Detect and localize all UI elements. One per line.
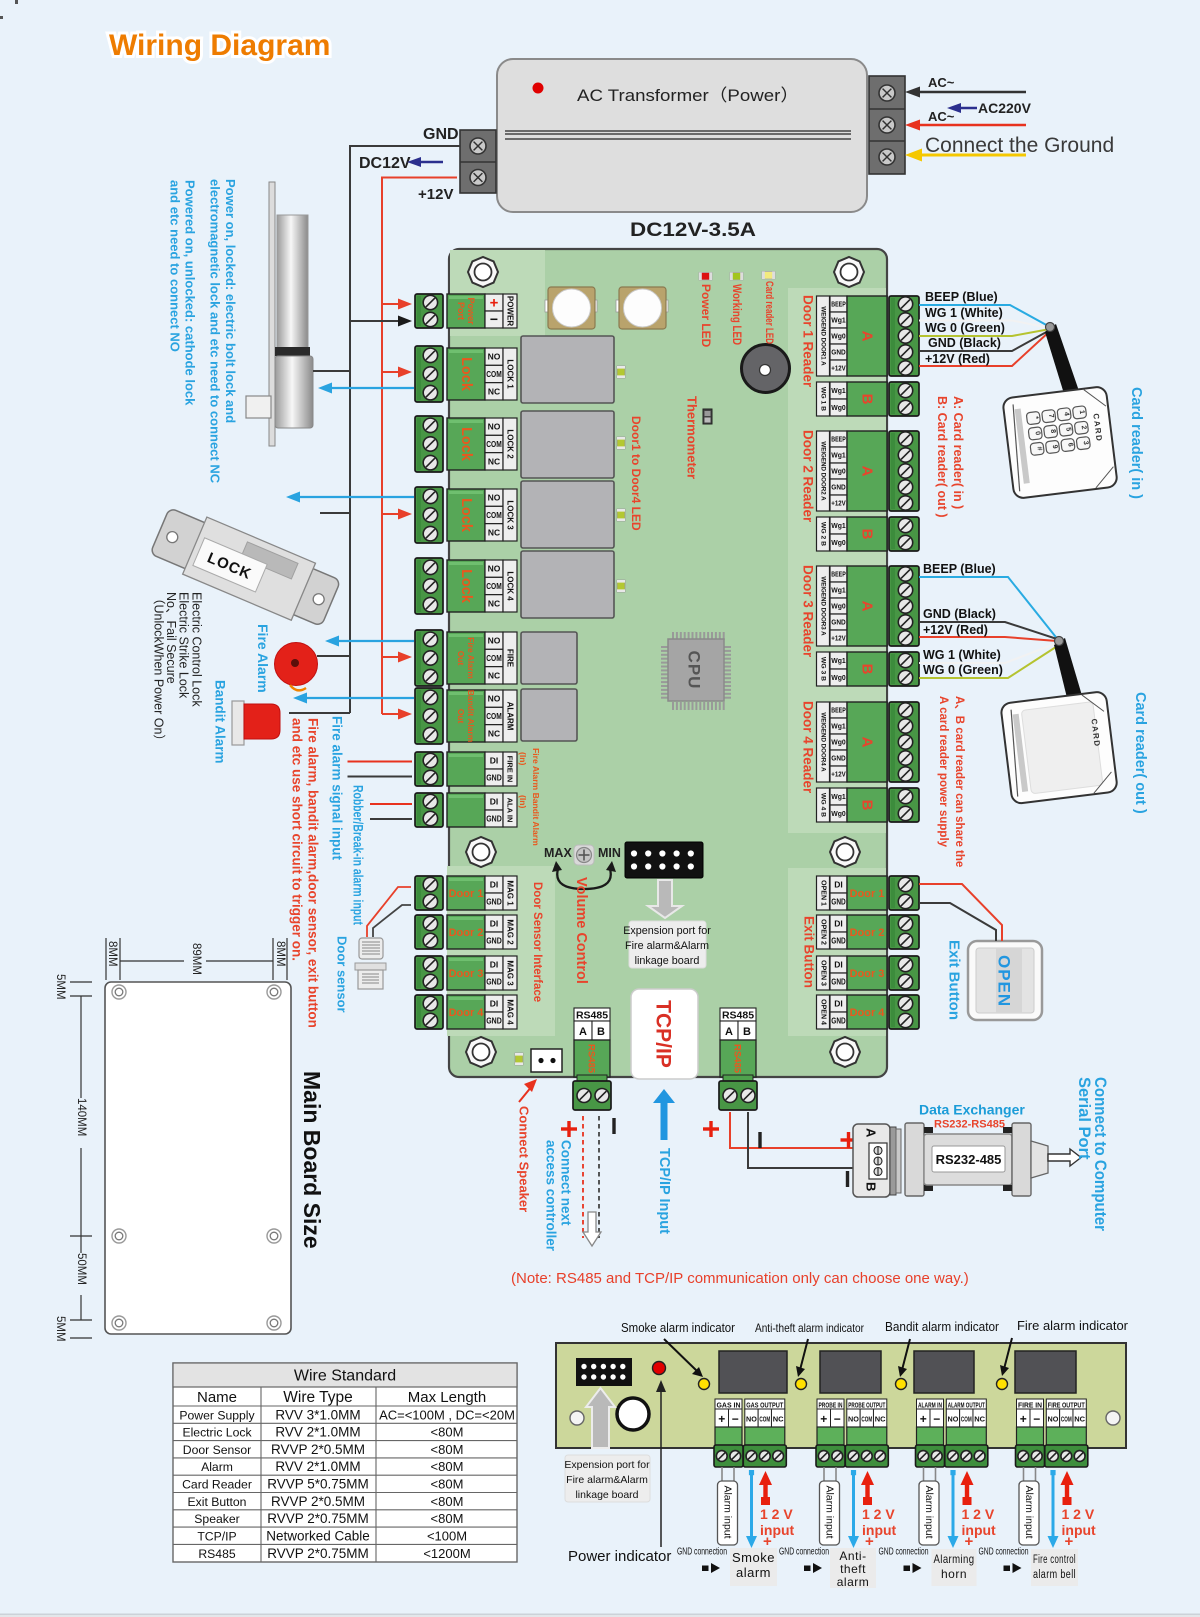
svg-text:NC: NC — [1074, 1417, 1085, 1424]
svg-text:A: A — [725, 1026, 733, 1038]
svg-text:electromagnetic lock and etc n: electromagnetic lock and etc need to con… — [208, 179, 223, 484]
svg-text:Card reader LED: Card reader LED — [763, 281, 775, 344]
svg-text:NO: NO — [488, 493, 501, 503]
svg-text:Door 1: Door 1 — [449, 888, 484, 900]
svg-text:theft: theft — [840, 1562, 866, 1576]
svg-text:AC Transformer（Power）: AC Transformer（Power） — [577, 86, 799, 105]
svg-text:Wg0: Wg0 — [831, 602, 846, 611]
svg-text:RS485: RS485 — [586, 1044, 597, 1074]
svg-text:A card reader power supply: A card reader power supply — [937, 696, 949, 848]
svg-text:Bandit alarm indicator: Bandit alarm indicator — [885, 1320, 999, 1334]
svg-text:1 2 V: 1 2 V — [862, 1506, 895, 1522]
svg-text:Alarm input: Alarm input — [722, 1485, 734, 1538]
svg-text:WG 0 (Green): WG 0 (Green) — [925, 321, 1005, 335]
svg-text:Alarm input: Alarm input — [1023, 1485, 1035, 1538]
svg-text:GND connection: GND connection — [879, 1546, 929, 1558]
svg-text:+12V: +12V — [831, 364, 846, 373]
svg-text:NC: NC — [488, 598, 500, 608]
svg-text:WEIGEND DOOR2 A: WEIGEND DOOR2 A — [820, 441, 827, 501]
svg-text:TCP/IP: TCP/IP — [652, 1000, 675, 1068]
svg-text:DI: DI — [834, 919, 843, 929]
svg-text:Card Reader: Card Reader — [182, 1478, 252, 1492]
svg-text:COM: COM — [486, 369, 502, 379]
svg-text:+: + — [1065, 1533, 1074, 1550]
svg-text:Robber/Break-in alarm input: Robber/Break-in alarm input — [351, 785, 366, 925]
svg-text:Out: Out — [456, 651, 466, 666]
svg-text:GND: GND — [423, 126, 459, 143]
svg-text:ALARM IN: ALARM IN — [918, 1400, 942, 1409]
svg-text:+12V (Red): +12V (Red) — [923, 623, 988, 637]
svg-text:GND connection: GND connection — [677, 1546, 727, 1558]
svg-text:1 2 V: 1 2 V — [1062, 1506, 1095, 1522]
svg-text:NC: NC — [488, 386, 500, 396]
svg-text:Power on, locked: electric bol: Power on, locked: electric bolt lock and — [223, 179, 238, 423]
svg-text:Power LED: Power LED — [699, 284, 713, 348]
svg-text:horn: horn — [941, 1567, 967, 1581]
svg-text:A: A — [859, 737, 876, 748]
svg-text:WEIGEND DOOR3 A: WEIGEND DOOR3 A — [820, 576, 827, 636]
svg-text:POWER: POWER — [506, 296, 515, 326]
svg-text:Bandit Alarm: Bandit Alarm — [466, 690, 476, 743]
svg-text:FIRE OUTPUT: FIRE OUTPUT — [1048, 1400, 1085, 1409]
svg-text:Lock: Lock — [458, 357, 474, 392]
svg-text:Anti-: Anti- — [839, 1549, 866, 1563]
svg-text:Wg1: Wg1 — [831, 521, 846, 530]
svg-text:B: B — [864, 1182, 879, 1191]
svg-text:Powered on, unlocked: cathode: Powered on, unlocked: cathode lock — [183, 180, 198, 406]
svg-text:RVV 3*1.0MM: RVV 3*1.0MM — [275, 1407, 360, 1422]
svg-text:1 2 V: 1 2 V — [962, 1506, 995, 1522]
svg-text:Fire alarm&Alarm: Fire alarm&Alarm — [625, 940, 709, 952]
svg-text:Networked Cable: Networked Cable — [266, 1528, 370, 1543]
svg-text:−: − — [933, 1412, 940, 1426]
svg-text:Fire Alarm: Fire Alarm — [466, 637, 476, 679]
svg-text:COM: COM — [486, 711, 502, 721]
svg-text:Fire alarm&Alarm: Fire alarm&Alarm — [566, 1474, 648, 1486]
svg-text:linkage board: linkage board — [575, 1489, 638, 1501]
svg-text:Wiring Diagram: Wiring Diagram — [109, 29, 330, 62]
svg-text:WG 1 (White): WG 1 (White) — [923, 648, 1001, 662]
svg-text:Door1 to Door4 LED: Door1 to Door4 LED — [629, 416, 643, 531]
svg-text:1 2 V: 1 2 V — [760, 1506, 793, 1522]
svg-text:alarm: alarm — [736, 1565, 771, 1580]
svg-text:BEEP: BEEP — [831, 570, 846, 579]
svg-text:GND: GND — [831, 897, 846, 907]
svg-text:RVV 2*1.0MM: RVV 2*1.0MM — [275, 1425, 360, 1440]
svg-text:Serial Port: Serial Port — [1075, 1077, 1093, 1160]
svg-text:Electric Lock: Electric Lock — [182, 1426, 252, 1440]
svg-text:Fire Alarm Bandit Alarm: Fire Alarm Bandit Alarm — [531, 748, 541, 846]
svg-text:Wg1: Wg1 — [831, 656, 846, 665]
svg-text:+: + — [718, 1412, 725, 1426]
svg-text:DI: DI — [490, 797, 499, 807]
svg-text:MAG 3: MAG 3 — [506, 960, 515, 986]
svg-text:Wg0: Wg0 — [831, 538, 846, 547]
svg-text:DI: DI — [834, 880, 843, 890]
svg-text:<80M: <80M — [431, 1425, 464, 1440]
svg-text:Door Sensor Interface: Door Sensor Interface — [531, 882, 543, 1002]
svg-text:Smoke: Smoke — [732, 1550, 775, 1565]
svg-text:AC~: AC~ — [928, 75, 955, 90]
svg-text:Door Sensor: Door Sensor — [183, 1443, 251, 1457]
svg-text:Wg1: Wg1 — [831, 792, 846, 801]
svg-text:GND: GND — [831, 618, 846, 627]
svg-text:WG 0 (Green): WG 0 (Green) — [923, 663, 1003, 677]
svg-text:−: − — [1033, 1412, 1040, 1426]
svg-text:GND: GND — [486, 977, 502, 987]
svg-text:Alarming: Alarming — [934, 1552, 975, 1566]
svg-text:Door 1 Reader: Door 1 Reader — [801, 295, 816, 388]
svg-text:Expension port for: Expension port for — [623, 925, 711, 937]
svg-text:LOCK 3: LOCK 3 — [506, 500, 515, 530]
svg-text:Alarm input: Alarm input — [923, 1485, 935, 1538]
svg-text:NO: NO — [488, 422, 501, 432]
svg-text:Exit Button: Exit Button — [946, 940, 963, 1020]
svg-text:alarm: alarm — [837, 1575, 870, 1589]
svg-text:Door 1: Door 1 — [850, 888, 885, 900]
svg-text:−: − — [834, 1412, 841, 1426]
svg-text:89MM: 89MM — [190, 943, 202, 975]
svg-text:and etc use short circuit to t: and etc use short circuit to trigger on. — [290, 718, 305, 961]
svg-text:+12V (Red): +12V (Red) — [925, 352, 990, 366]
svg-text:B: B — [743, 1026, 751, 1038]
svg-text:5MM: 5MM — [54, 1316, 66, 1342]
svg-text:B: B — [859, 394, 876, 405]
svg-text:Door 4: Door 4 — [449, 1007, 485, 1019]
svg-text:GND: GND — [486, 936, 502, 946]
svg-text:Fire alarm signal input: Fire alarm signal input — [330, 716, 345, 861]
svg-text:NC: NC — [974, 1417, 985, 1424]
svg-text:<80M: <80M — [431, 1511, 464, 1526]
svg-text:+12V: +12V — [418, 186, 453, 203]
svg-text:+: + — [490, 295, 499, 312]
svg-text:Door 3: Door 3 — [850, 968, 885, 980]
svg-text:+: + — [1020, 1412, 1027, 1426]
svg-text:RVVP 5*0.75MM: RVVP 5*0.75MM — [267, 1477, 369, 1492]
svg-text:DI: DI — [490, 919, 499, 929]
svg-text:140MM: 140MM — [75, 1098, 87, 1136]
svg-text:Door sensor: Door sensor — [335, 936, 350, 1013]
svg-text:+: + — [763, 1533, 772, 1550]
svg-text:Power: Power — [466, 297, 476, 325]
svg-text:Wg1: Wg1 — [831, 722, 846, 731]
svg-text:Wg0: Wg0 — [831, 332, 846, 341]
svg-text:WG 3 B: WG 3 B — [820, 657, 827, 681]
svg-text:Door 2: Door 2 — [449, 927, 484, 939]
svg-text:GND: GND — [831, 483, 846, 492]
svg-text:NO: NO — [488, 694, 501, 704]
svg-text:A: A — [859, 331, 876, 342]
svg-text:A: A — [864, 1128, 879, 1138]
svg-text:A: A — [579, 1026, 587, 1038]
svg-text:A: A — [859, 601, 876, 612]
svg-text:COM: COM — [1061, 1417, 1072, 1424]
svg-text:MAX: MAX — [544, 846, 572, 860]
svg-text:LOCK 4: LOCK 4 — [506, 571, 515, 601]
svg-text:B: Card reader( out ): B: Card reader( out ) — [935, 396, 949, 518]
svg-text:<1200M: <1200M — [423, 1546, 470, 1561]
svg-text:（UnlockWhen Power On）: （UnlockWhen Power On） — [151, 592, 165, 747]
svg-text:RS485: RS485 — [732, 1044, 743, 1074]
svg-text:LOCK 2: LOCK 2 — [506, 429, 515, 459]
svg-text:+12V: +12V — [831, 499, 846, 508]
svg-text:Fire Alarm: Fire Alarm — [255, 624, 271, 693]
svg-text:5MM: 5MM — [54, 974, 66, 1000]
svg-text:RVVP 2*0.5MM: RVVP 2*0.5MM — [271, 1494, 365, 1509]
svg-text:GAS IN: GAS IN — [717, 1400, 741, 1409]
svg-text:FIRE: FIRE — [506, 649, 515, 668]
svg-text:WEIGEND DOOR1 A: WEIGEND DOOR1 A — [820, 306, 827, 366]
svg-text:Smoke alarm indicator: Smoke alarm indicator — [621, 1321, 735, 1335]
svg-text:NC: NC — [488, 670, 500, 680]
svg-text:MAG 1: MAG 1 — [506, 880, 515, 906]
svg-text:COM: COM — [486, 439, 502, 449]
svg-text:Door 3: Door 3 — [449, 968, 484, 980]
svg-text:B: B — [859, 800, 876, 811]
svg-text:GND: GND — [486, 897, 502, 907]
svg-text:GND (Black): GND (Black) — [923, 607, 996, 621]
svg-text:DI: DI — [490, 960, 499, 970]
svg-text:Exit Button: Exit Button — [188, 1495, 247, 1509]
svg-text:MIN: MIN — [598, 846, 621, 860]
svg-text:RS232-485: RS232-485 — [936, 1152, 1002, 1167]
svg-text:Wg0: Wg0 — [831, 673, 846, 682]
svg-text:TCP/IP Input: TCP/IP Input — [656, 1148, 672, 1234]
svg-text:Wg1: Wg1 — [831, 586, 846, 595]
svg-text:DI: DI — [490, 999, 499, 1009]
svg-text:NO: NO — [488, 636, 501, 646]
svg-text:WG 1 B: WG 1 B — [820, 387, 827, 411]
svg-text:<80M: <80M — [431, 1459, 464, 1474]
svg-text:Card reader( in ): Card reader( in ) — [1128, 387, 1144, 499]
svg-text:NC: NC — [488, 456, 500, 466]
svg-text:AC~: AC~ — [928, 109, 955, 124]
svg-text:NO: NO — [1048, 1417, 1059, 1424]
svg-text:Volume Control: Volume Control — [573, 877, 589, 984]
svg-text:COM: COM — [486, 510, 502, 520]
svg-text:DI: DI — [834, 999, 843, 1009]
svg-text:Connect next: Connect next — [559, 1140, 574, 1226]
svg-text:Speaker: Speaker — [194, 1512, 239, 1526]
svg-text:GND connection: GND connection — [979, 1546, 1029, 1558]
svg-text:access controller: access controller — [544, 1140, 559, 1252]
svg-text:OPEN: OPEN — [995, 955, 1014, 1007]
svg-text:ALARM: ALARM — [506, 702, 515, 731]
svg-text:+12V: +12V — [831, 770, 846, 779]
svg-text:Thermometer: Thermometer — [685, 396, 700, 479]
svg-text:RS232-RS485: RS232-RS485 — [934, 1119, 1005, 1131]
svg-text:+12V: +12V — [831, 634, 846, 643]
svg-text:GND connection: GND connection — [779, 1546, 829, 1558]
svg-text:Door 3 Reader: Door 3 Reader — [801, 565, 816, 658]
svg-text:Alarm input: Alarm input — [824, 1485, 836, 1538]
svg-text:Port: Port — [456, 302, 466, 320]
svg-text:Connect Speaker: Connect Speaker — [517, 1106, 532, 1212]
svg-text:Lock: Lock — [458, 427, 474, 462]
svg-text:8MM: 8MM — [274, 941, 286, 967]
svg-text:<80M: <80M — [431, 1494, 464, 1509]
svg-text:Wg1: Wg1 — [831, 316, 846, 325]
svg-text:−: − — [490, 311, 498, 327]
svg-text:A: Card reader( in ): A: Card reader( in ) — [951, 396, 965, 509]
svg-text:COM: COM — [486, 581, 502, 591]
svg-text:Door 4 Reader: Door 4 Reader — [801, 701, 816, 794]
svg-text:Power indicator: Power indicator — [568, 1548, 671, 1565]
svg-text:GND: GND — [831, 936, 846, 946]
svg-text:BEEP: BEEP — [831, 300, 846, 309]
svg-text:NC: NC — [773, 1417, 784, 1424]
svg-text:NO: NO — [488, 564, 501, 574]
svg-text:Exit Button: Exit Button — [802, 916, 817, 988]
svg-text:DI: DI — [490, 756, 499, 766]
svg-text:MAG 4: MAG 4 — [506, 999, 515, 1025]
svg-text:<80M: <80M — [431, 1477, 464, 1492]
svg-text:alarm bell: alarm bell — [1033, 1569, 1076, 1581]
svg-text:Lock: Lock — [458, 569, 474, 604]
svg-text:AC220V: AC220V — [978, 100, 1032, 116]
svg-text:FIRE IN: FIRE IN — [506, 756, 515, 783]
svg-text:Wg0: Wg0 — [831, 403, 846, 412]
svg-text:DI: DI — [490, 880, 499, 890]
svg-text:TCP/IP: TCP/IP — [197, 1529, 236, 1543]
svg-text:Card reader( out ): Card reader( out ) — [1132, 692, 1148, 814]
svg-text:GND: GND — [486, 814, 502, 824]
svg-text:COM: COM — [961, 1417, 972, 1424]
svg-text:Expension port for: Expension port for — [564, 1459, 650, 1471]
svg-text:Main Board Size: Main Board Size — [299, 1071, 325, 1249]
svg-text:OPEN 4: OPEN 4 — [820, 999, 827, 1025]
svg-text:Door 2: Door 2 — [850, 927, 885, 939]
svg-text:COM: COM — [486, 653, 502, 663]
svg-text:BEEP: BEEP — [831, 435, 846, 444]
svg-text:A: A — [859, 466, 876, 477]
svg-text:GAS OUTPUT: GAS OUTPUT — [746, 1400, 783, 1409]
svg-text:NO: NO — [746, 1417, 757, 1424]
svg-text:(In): (In) — [518, 795, 528, 808]
svg-text:Data Exchanger: Data Exchanger — [919, 1102, 1025, 1118]
svg-text:Door 4: Door 4 — [850, 1007, 886, 1019]
svg-text:Fire control: Fire control — [1033, 1554, 1076, 1566]
svg-text:Out: Out — [456, 709, 466, 724]
svg-text:NC: NC — [875, 1417, 886, 1424]
svg-text:GND: GND — [831, 348, 846, 357]
svg-text:+: + — [820, 1412, 827, 1426]
svg-text:DI: DI — [834, 960, 843, 970]
svg-text:WG 4 B: WG 4 B — [820, 793, 827, 817]
svg-text:NC: NC — [488, 527, 500, 537]
svg-text:Anti-theft alarm indicator: Anti-theft alarm indicator — [755, 1321, 864, 1335]
svg-text:Name: Name — [197, 1389, 237, 1406]
svg-text:NO: NO — [488, 352, 501, 362]
svg-text:B: B — [859, 529, 876, 540]
svg-text:OPEN 3: OPEN 3 — [820, 960, 827, 986]
svg-text:GND: GND — [831, 1016, 846, 1026]
svg-text:8MM: 8MM — [106, 941, 118, 967]
svg-text:Alarm: Alarm — [201, 1460, 233, 1474]
svg-text:(Note: RS485 and TCP/IP commun: (Note: RS485 and TCP/IP communication on… — [511, 1270, 969, 1287]
svg-text:NO: NO — [848, 1417, 859, 1424]
svg-text:PROBE IN: PROBE IN — [819, 1400, 843, 1409]
svg-text:ALARM OUTPUT: ALARM OUTPUT — [948, 1400, 985, 1409]
svg-text:A、B card reader can share the: A、B card reader can share the — [953, 696, 965, 867]
svg-text:(In): (In) — [518, 752, 528, 765]
svg-text:+: + — [865, 1533, 874, 1550]
svg-text:RS485: RS485 — [198, 1547, 235, 1561]
svg-text:+: + — [965, 1533, 974, 1550]
svg-text:RVVP 2*0.5MM: RVVP 2*0.5MM — [271, 1442, 365, 1457]
svg-text:FIRE IN: FIRE IN — [1018, 1400, 1042, 1409]
svg-text:PROBE OUTPUT: PROBE OUTPUT — [848, 1400, 885, 1409]
svg-text:Connect the Ground: Connect the Ground — [925, 134, 1114, 157]
svg-text:Wg0: Wg0 — [831, 467, 846, 476]
svg-text:CPU: CPU — [685, 651, 704, 690]
svg-text:WG 1 (White): WG 1 (White) — [925, 306, 1003, 320]
svg-text:B: B — [597, 1026, 605, 1038]
svg-text:RS485: RS485 — [576, 1010, 608, 1022]
svg-text:Max Length: Max Length — [408, 1389, 486, 1406]
svg-text:50MM: 50MM — [75, 1253, 87, 1285]
svg-text:MAG 2: MAG 2 — [506, 919, 515, 945]
svg-text:GND: GND — [486, 773, 502, 783]
svg-text:GND (Black): GND (Black) — [928, 336, 1001, 350]
svg-text:GND: GND — [831, 754, 846, 763]
svg-text:OPEN 1: OPEN 1 — [820, 880, 827, 906]
svg-text:Bandit Alarm: Bandit Alarm — [213, 680, 228, 764]
svg-text:OPEN 2: OPEN 2 — [820, 919, 827, 945]
svg-text:DC12V: DC12V — [359, 155, 411, 172]
svg-text:WG 2 B: WG 2 B — [820, 522, 827, 546]
svg-text:<100M: <100M — [427, 1528, 467, 1543]
svg-text:Working LED: Working LED — [730, 284, 744, 345]
svg-text:RVV 2*1.0MM: RVV 2*1.0MM — [275, 1459, 360, 1474]
svg-text:Door 2 Reader: Door 2 Reader — [801, 430, 816, 523]
svg-text:GND: GND — [831, 977, 846, 987]
svg-text:−: − — [732, 1412, 739, 1426]
svg-text:Wire Standard: Wire Standard — [294, 1368, 396, 1385]
svg-text:Lock: Lock — [458, 498, 474, 533]
svg-text:Wire Type: Wire Type — [283, 1389, 353, 1406]
svg-text:Wg0: Wg0 — [831, 809, 846, 818]
svg-text:Wg0: Wg0 — [831, 738, 846, 747]
svg-text:and etc need to connect NO: and etc need to connect NO — [168, 180, 183, 352]
svg-text:Fire alarm indicator: Fire alarm indicator — [1017, 1319, 1128, 1333]
svg-text:LOCK 1: LOCK 1 — [506, 359, 515, 389]
svg-text:ALA IN: ALA IN — [506, 798, 515, 823]
svg-text:Wg1: Wg1 — [831, 386, 846, 395]
svg-text:NC: NC — [488, 728, 500, 738]
svg-text:linkage board: linkage board — [635, 955, 700, 967]
svg-text:RVVP 2*0.75MM: RVVP 2*0.75MM — [267, 1546, 369, 1561]
svg-text:BEEP (Blue): BEEP (Blue) — [923, 562, 996, 576]
svg-text:DC12V-3.5A: DC12V-3.5A — [630, 220, 756, 241]
svg-text:WEIGEND DOOR4 A: WEIGEND DOOR4 A — [820, 712, 827, 772]
svg-text:COM: COM — [759, 1417, 770, 1424]
svg-text:COM: COM — [861, 1417, 872, 1424]
svg-text:Power Supply: Power Supply — [179, 1408, 255, 1422]
svg-text:NO: NO — [948, 1417, 959, 1424]
svg-text:B: B — [859, 664, 876, 675]
svg-text:<80M: <80M — [431, 1442, 464, 1457]
svg-text:+: + — [920, 1412, 927, 1426]
svg-text:Wg1: Wg1 — [831, 451, 846, 460]
svg-text:BEEP (Blue): BEEP (Blue) — [925, 290, 998, 304]
svg-text:GND: GND — [486, 1016, 502, 1026]
svg-text:AC=<100M , DC=<20M: AC=<100M , DC=<20M — [379, 1407, 515, 1422]
svg-text:Fire alarm, bandit alarm,door: Fire alarm, bandit alarm,door sensor, ex… — [306, 718, 321, 1028]
svg-text:RS485: RS485 — [722, 1010, 754, 1022]
svg-text:BEEP: BEEP — [831, 706, 846, 715]
svg-text:RVVP 2*0.75MM: RVVP 2*0.75MM — [267, 1511, 369, 1526]
